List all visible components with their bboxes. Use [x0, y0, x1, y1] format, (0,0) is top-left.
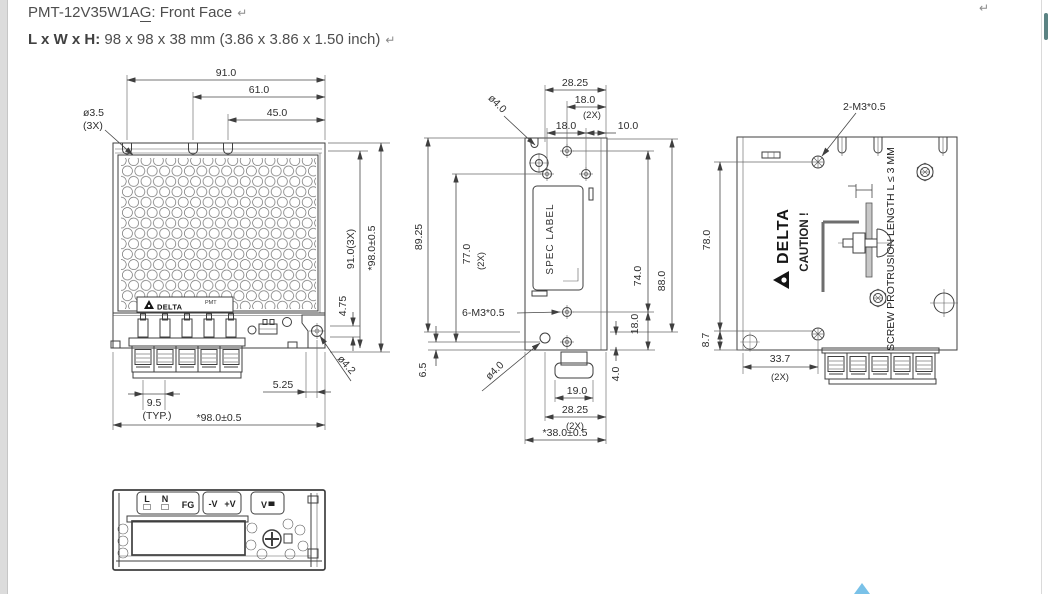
front-outline: [111, 143, 325, 348]
document-page: { "document": { "title_prefix": "PMT-12V…: [0, 0, 1049, 594]
side-dim-65: 6.5: [417, 363, 429, 378]
led-indicator: [248, 326, 256, 334]
side-dim-depth-overall: *38.0±0.5: [543, 427, 588, 439]
screw-installation-diagram: [823, 184, 892, 292]
front-brand-text: DELTA: [157, 303, 183, 312]
terminal-sub-mark: [144, 505, 151, 510]
terminal-posts: [138, 314, 236, 337]
component-block: [284, 534, 292, 543]
technical-drawing: DELTA PMT: [0, 0, 1049, 594]
side-hole-notch-label: ø4.0: [485, 92, 508, 115]
back-view: DELTA CAUTION ! SCREW PROTRUSION LENGTH …: [700, 101, 958, 384]
side-dim-2825-bottom: 28.25: [562, 404, 588, 416]
caution-text: CAUTION !: [799, 212, 811, 271]
front-series-text: PMT: [205, 300, 217, 306]
side-qty-2x: (2X): [583, 110, 601, 121]
terminal-sub-mark: [162, 505, 169, 510]
front-hole-dia-label: ø3.5: [83, 107, 104, 119]
back-brand-logo: DELTA: [773, 208, 792, 289]
edge-detail: [308, 549, 318, 558]
side-dim-2825: 28.25: [562, 77, 588, 89]
front-dim-corner-offset: 5.25: [273, 379, 294, 391]
front-dim-terminal-pitch: 9.5: [147, 397, 162, 409]
terminal-cover: [132, 521, 245, 555]
dip-switch[interactable]: [259, 320, 277, 335]
terminal-label-fg: FG: [182, 500, 195, 510]
side-dim-77-qty: (2X): [476, 252, 487, 270]
adjust-pot-hole: [283, 318, 292, 327]
front-dim-width-outer: 91.0: [216, 67, 237, 79]
front-hole-corner-label: ø4.2: [335, 353, 358, 377]
side-dim-18-top: 18.0: [575, 94, 596, 106]
back-thread-note: 2-M3*0.5: [843, 101, 886, 113]
back-dim-78: 78.0: [701, 230, 713, 251]
front-brand-plate: DELTA PMT: [137, 297, 233, 312]
side-dim-4: 4.0: [610, 367, 622, 382]
front-dim-overall-v: *98.0±0.5: [366, 225, 378, 270]
side-dim-88: 88.0: [656, 271, 668, 292]
front-terminal-pitch-note: (TYP.): [143, 410, 172, 422]
front-terminal-block: [129, 338, 245, 378]
terminal-label-posv: +V: [224, 499, 235, 509]
side-hole-bottom-label: ø4.0: [483, 359, 506, 382]
vadj-subscript-mark: [269, 502, 275, 507]
front-dim-foot: 4.75: [337, 296, 349, 317]
front-dim-width-mid: 61.0: [249, 84, 270, 96]
back-dim-87: 8.7: [700, 333, 712, 348]
terminal-label-negv: -V: [209, 499, 218, 509]
side-dim-8925: 89.25: [413, 224, 425, 250]
scrollbar-thumb[interactable]: [1044, 13, 1048, 40]
front-dim-width-inner: 45.0: [267, 107, 288, 119]
side-thread-note: 6-M3*0.5: [462, 307, 505, 319]
back-terminal-block: [822, 348, 939, 384]
side-dim-10: 10.0: [618, 120, 639, 132]
front-hole-qty-label: (3X): [83, 120, 103, 132]
spec-label-text: SPEC LABEL: [545, 203, 556, 274]
protrusion-note-text: SCREW PROTRUSION LENGTH L ≤ 3 MM: [885, 147, 897, 351]
front-dim-height-holes: 91.0(3X): [345, 229, 357, 269]
anchor-marker-icon: [854, 583, 870, 594]
side-dim-19: 19.0: [567, 385, 588, 397]
edge-detail: [308, 496, 318, 503]
front-dim-overall-h: *98.0±0.5: [197, 412, 242, 424]
side-view: SPEC LABEL 28.25 18.0 (2X) 18.0 10.0 ø4.…: [413, 77, 678, 444]
voltage-adjust-pot[interactable]: [263, 530, 281, 548]
spec-label: SPEC LABEL: [533, 186, 583, 290]
terminal-label-vadj: V: [261, 500, 267, 510]
back-brand-text: DELTA: [775, 208, 792, 264]
terminal-labels: L N FG -V +V V: [137, 492, 284, 514]
scrollbar-track[interactable]: [1041, 0, 1042, 594]
side-dim-77: 77.0: [461, 244, 473, 265]
terminal-label-n: N: [162, 494, 169, 504]
terminal-label-l: L: [144, 494, 150, 504]
corner-bracket: [302, 315, 325, 348]
side-dim-18-right: 18.0: [629, 314, 641, 335]
side-dim-18-mid: 18.0: [556, 120, 577, 132]
side-dim-74: 74.0: [632, 266, 644, 287]
back-dim-337-qty: (2X): [771, 372, 789, 383]
back-dim-337: 33.7: [770, 353, 791, 365]
front-view: DELTA PMT: [83, 67, 390, 430]
bottom-view: L N FG -V +V V: [113, 490, 325, 570]
